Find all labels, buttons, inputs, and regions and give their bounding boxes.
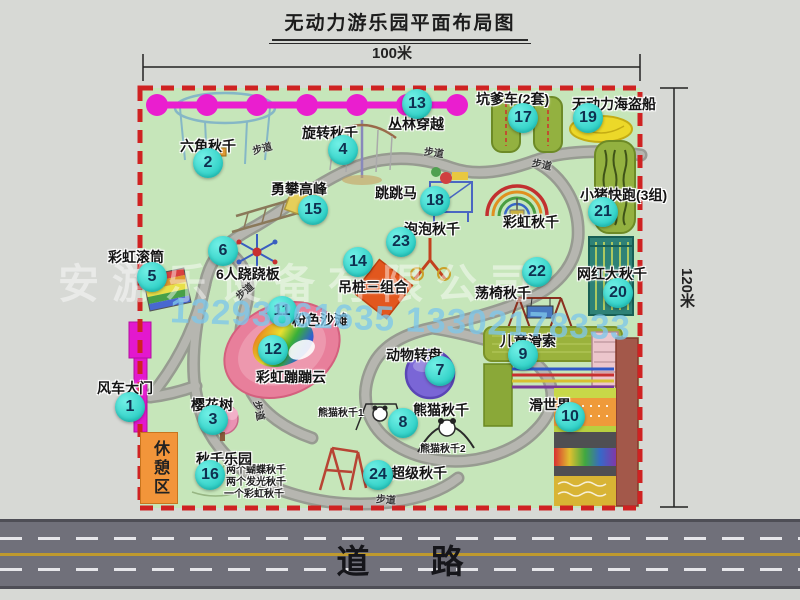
dimension-width-label: 100米 <box>352 42 432 63</box>
dimension-height-label: 120米 <box>676 268 697 308</box>
page-title: 无动力游乐园平面布局图 <box>272 8 527 41</box>
pirate-ship-sketch <box>570 116 632 142</box>
road: 道 路 <box>0 519 800 589</box>
big-net-swing-sketch <box>589 237 633 315</box>
page-title-wrap: 无动力游乐园平面布局图 <box>0 8 800 41</box>
park-plan-screenshot: 无动力游乐园平面布局图 100米 120米 <box>0 0 800 600</box>
rest-area-box: 休憩区 <box>140 432 178 504</box>
piggy-run-sketch <box>595 141 635 233</box>
animal-turntable-sketch <box>406 350 454 398</box>
road-label: 道 路 <box>0 535 800 583</box>
